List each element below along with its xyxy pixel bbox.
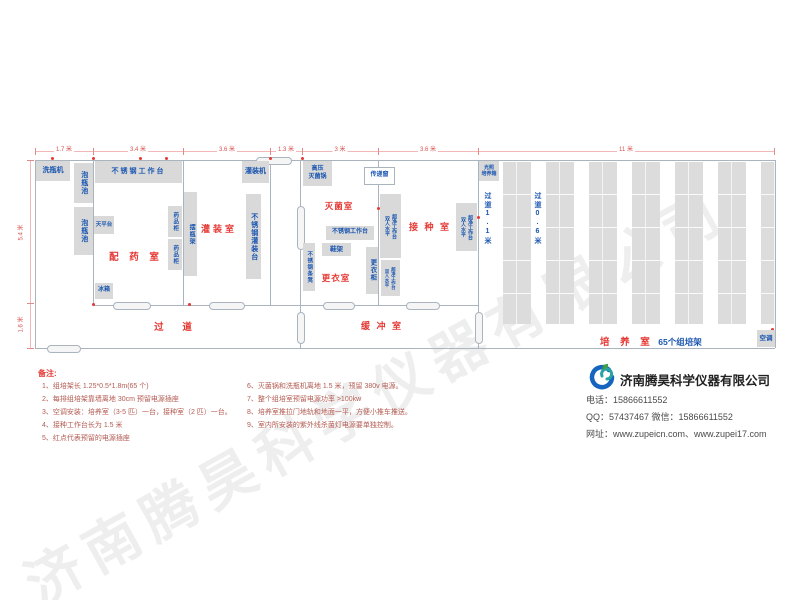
bench-label: 双人水平 [384, 216, 390, 236]
autoclave-label: 高压 [311, 166, 323, 173]
outlet-dot [92, 303, 95, 306]
room-label-inocul: 接 种 室 [409, 220, 451, 233]
pass-through-window: 传递窗 [364, 167, 395, 185]
laminar-flow-bench: 双人水平 超净工作台 [380, 194, 401, 258]
outlet-dot [92, 157, 95, 160]
dim-tick [378, 148, 379, 155]
culture-rack-row [546, 162, 574, 324]
wall-right [775, 160, 776, 348]
autoclave-label: 灭菌锅 [308, 174, 326, 181]
outlet-dot [188, 303, 191, 306]
laminar-flow-bench: 双人水平 超净工作台 [381, 260, 400, 296]
dim-label: 1.3 米 [276, 144, 296, 153]
dim-tick [27, 160, 34, 161]
autoclave: 高压 灭菌锅 [303, 161, 332, 186]
soaking-pool: 泡瓶池 [74, 207, 93, 255]
note-item: 1、组培架长 1.25*0.5*1.8m(65 个) [42, 381, 149, 391]
company-website: 网址：www.zupeicn.com、www.zupei17.com [586, 427, 767, 440]
culture-rack-row [761, 162, 775, 324]
medicine-cabinet: 药品柜 [168, 206, 182, 237]
dim-tick [27, 348, 34, 349]
room-label-changing: 更衣室 [322, 272, 351, 284]
room-label-buffer: 缓 冲 室 [361, 319, 403, 332]
corridor-label: 过道1.1米 [482, 192, 492, 246]
wall-left [35, 160, 36, 348]
soaking-pool: 泡瓶池 [74, 163, 93, 203]
dim-label: 3.6 米 [418, 144, 438, 153]
company-name: 济南腾昊科学仪器有限公司 [620, 370, 770, 389]
door [209, 302, 245, 310]
bench-label: 超净工作台 [391, 214, 397, 239]
steel-filling-table: 不锈钢灌装台 [246, 194, 261, 279]
note-item: 7、整个组培室预留电源功率 >100kw [247, 394, 361, 404]
dim-label: 1.6 米 [16, 316, 25, 332]
bottle-rack: 摆瓶架 [184, 192, 197, 276]
company-qq-wechat: QQ：57437467 微信：15866611552 [586, 410, 733, 423]
filling-machine: 灌装机 [242, 161, 269, 183]
door [475, 312, 483, 344]
room-label-culture: 培 养 室 65个组培架 [600, 332, 702, 350]
shoe-rack: 鞋架 [322, 243, 351, 256]
culture-rack-row [632, 162, 660, 324]
dim-tick [270, 148, 271, 155]
medicine-cabinet: 药品柜 [168, 239, 182, 270]
note-item: 9、室内所安装的紫外线杀菌灯电源要单独控制。 [247, 420, 398, 430]
entrance-door [47, 345, 81, 353]
room-label-corridor: 过 道 [154, 319, 200, 333]
door [113, 302, 151, 310]
outlet-dot [269, 157, 272, 160]
note-item: 3、空调安装：培养室（3-5 匹）一台，接种室（2 匹）一台。 [42, 407, 232, 417]
dim-tick [35, 148, 36, 155]
company-logo [588, 363, 616, 391]
note-item: 8、培养室推拉门地轨和地面一平，方便小推车推送。 [247, 407, 412, 417]
dim-tick [183, 148, 184, 155]
outlet-dot [139, 157, 142, 160]
rack-count-label: 65个组培架 [658, 337, 701, 347]
dim-label: 3.4 米 [128, 144, 148, 153]
note-item: 4、接种工作台长为 1.5 米 [42, 420, 123, 430]
fridge: 冰箱 [95, 283, 113, 299]
culture-rack-row [589, 162, 617, 324]
notes-heading: 备注: [38, 368, 57, 379]
wall-interior [270, 160, 271, 305]
steel-worktable: 不锈钢工作台 [95, 161, 182, 183]
balance-table: 天平台 [94, 216, 114, 234]
door [323, 302, 355, 310]
bench-label: 超净工作台 [391, 267, 396, 290]
dim-tick [302, 148, 303, 155]
room-label-prep: 配 药 室 [109, 249, 163, 263]
outlet-dot [477, 216, 480, 219]
steel-bench: 不锈钢条凳 [303, 243, 315, 291]
note-item: 2、每排组培架靠墙离地 30cm 预留电源插座 [42, 394, 179, 404]
corridor-label: 过道0.6米 [532, 192, 542, 246]
dim-tick [27, 303, 34, 304]
dim-label: 11 米 [617, 144, 635, 153]
bottle-washer: 洗瓶机 [36, 161, 70, 181]
company-phone: 电话：15866611552 [586, 393, 667, 406]
light-incubator: 光照 培养箱 [479, 161, 499, 181]
bench-label: 双人水平 [385, 269, 390, 287]
dim-label: 1.7 米 [54, 144, 74, 153]
culture-room-label: 培 养 室 [600, 337, 654, 348]
dim-label: 5.4 米 [16, 224, 25, 240]
bench-label: 超净工作台 [467, 215, 473, 240]
dim-label: 3 米 [332, 144, 347, 153]
dim-tick [774, 148, 775, 155]
note-item: 5、红点代表预留的电源插座 [42, 433, 130, 443]
door [297, 312, 305, 344]
bench-label: 双人水平 [460, 217, 466, 237]
dim-tick [93, 148, 94, 155]
locker: 更衣柜 [366, 247, 378, 294]
outlet-dot [51, 157, 54, 160]
steel-worktable: 不锈钢工作台 [326, 226, 374, 240]
dim-tick [478, 148, 479, 155]
outlet-dot [165, 157, 168, 160]
culture-rack-row [503, 162, 531, 324]
laminar-flow-bench: 双人水平 超净工作台 [456, 203, 477, 251]
floorplan-page: 济南腾昊科学仪器有限公司 1.7 米 3.4 米 3.6 米 1.3 米 3 米… [0, 0, 800, 600]
door [406, 302, 440, 310]
culture-rack-row [675, 162, 703, 324]
culture-rack-row [718, 162, 746, 324]
air-conditioner: 空调 [757, 330, 775, 347]
room-label-filling: 灌装室 [201, 222, 237, 235]
note-item: 6、灭菌锅和洗瓶机离地 1.5 米，预留 380v 电源。 [247, 381, 403, 391]
left-dimension-line [30, 160, 31, 348]
company-logo-icon [588, 363, 616, 391]
outlet-dot [301, 157, 304, 160]
incubator-label: 培养箱 [481, 171, 496, 177]
room-label-steril: 灭菌室 [325, 200, 354, 212]
dim-label: 3.6 米 [217, 144, 237, 153]
